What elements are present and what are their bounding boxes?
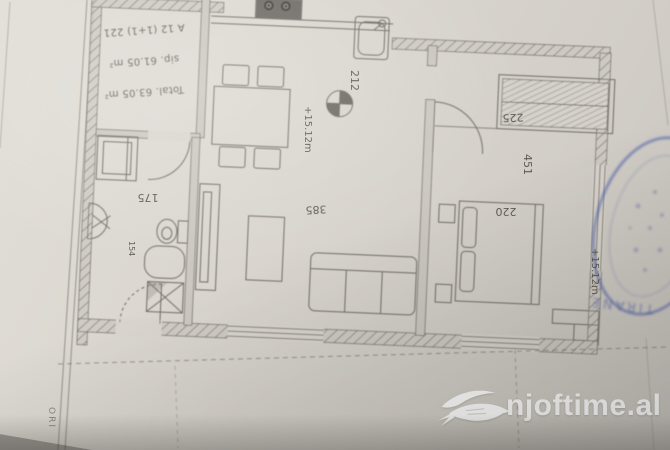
- coffee-table: [246, 216, 285, 282]
- tv-stand: [195, 184, 220, 291]
- window-living: [227, 323, 324, 343]
- sofa: [309, 253, 417, 316]
- apartment-total-label: Total. 63.05 m²: [95, 73, 193, 111]
- window-bedroom-south: [461, 333, 540, 352]
- nightstand: [435, 204, 455, 303]
- bathroom-door: [146, 130, 190, 181]
- label-bedroom-width: 451: [521, 154, 533, 175]
- paper-edge-text: ORI: [45, 407, 57, 429]
- label-living-width: 385: [294, 202, 339, 216]
- toilet: [156, 219, 188, 244]
- swallow-bird-icon: [438, 384, 512, 428]
- kitchen-counter: [211, 16, 393, 31]
- kitchen-stove: [255, 0, 302, 20]
- label-bed-width: 220: [486, 205, 526, 217]
- approval-stamp: TIRANE: [575, 124, 670, 328]
- shower: [146, 281, 183, 313]
- label-bath-width: 175: [128, 191, 168, 203]
- label-level-living: +15.12m: [301, 106, 313, 153]
- bedroom-door: [433, 102, 485, 154]
- label-bath-side: 154: [125, 241, 137, 256]
- apartment-title-block: A 12 (1+1) 221 sip. 61.05 m² Total. 63.0…: [96, 14, 192, 107]
- watermark-text: njoftime.al: [506, 389, 662, 423]
- balcony-hatch: [497, 75, 615, 134]
- washing-machine: [96, 135, 138, 181]
- label-balcony-width: 225: [491, 110, 535, 124]
- dining-table: [211, 64, 291, 169]
- njoftime-watermark: njoftime.al: [438, 380, 670, 432]
- floor-plan-photo: TIRANE A 12 (1+1) 221 sip. 61.05 m² Tota…: [0, 0, 670, 450]
- label-level-bedroom: +15.12m: [588, 248, 600, 295]
- label-kitchen-width: 212: [348, 70, 360, 91]
